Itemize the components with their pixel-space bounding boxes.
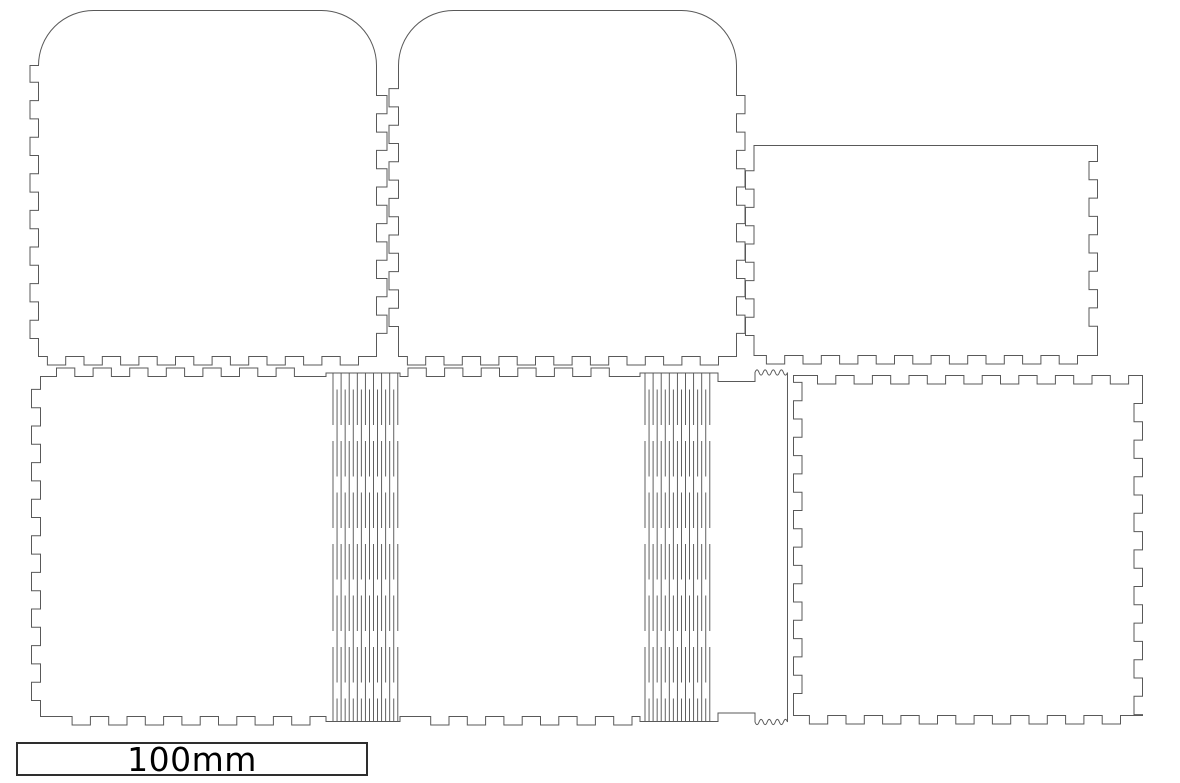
panel-lid-right <box>389 11 745 366</box>
panel-back <box>746 146 1098 365</box>
living-hinge-column-2 <box>645 373 710 721</box>
panel-body-living-hinge <box>32 368 788 725</box>
panel-outlines <box>30 11 1143 726</box>
living-hinge-column-1 <box>333 373 398 721</box>
scale-bar-label: 100mm <box>127 743 257 776</box>
scale-bar: 100mm <box>16 742 368 776</box>
panel-lid-left <box>30 11 387 366</box>
laser-cut-template: 100mm <box>0 0 1180 783</box>
cut-paths-svg <box>0 0 1180 783</box>
panel-side-right <box>794 376 1143 725</box>
